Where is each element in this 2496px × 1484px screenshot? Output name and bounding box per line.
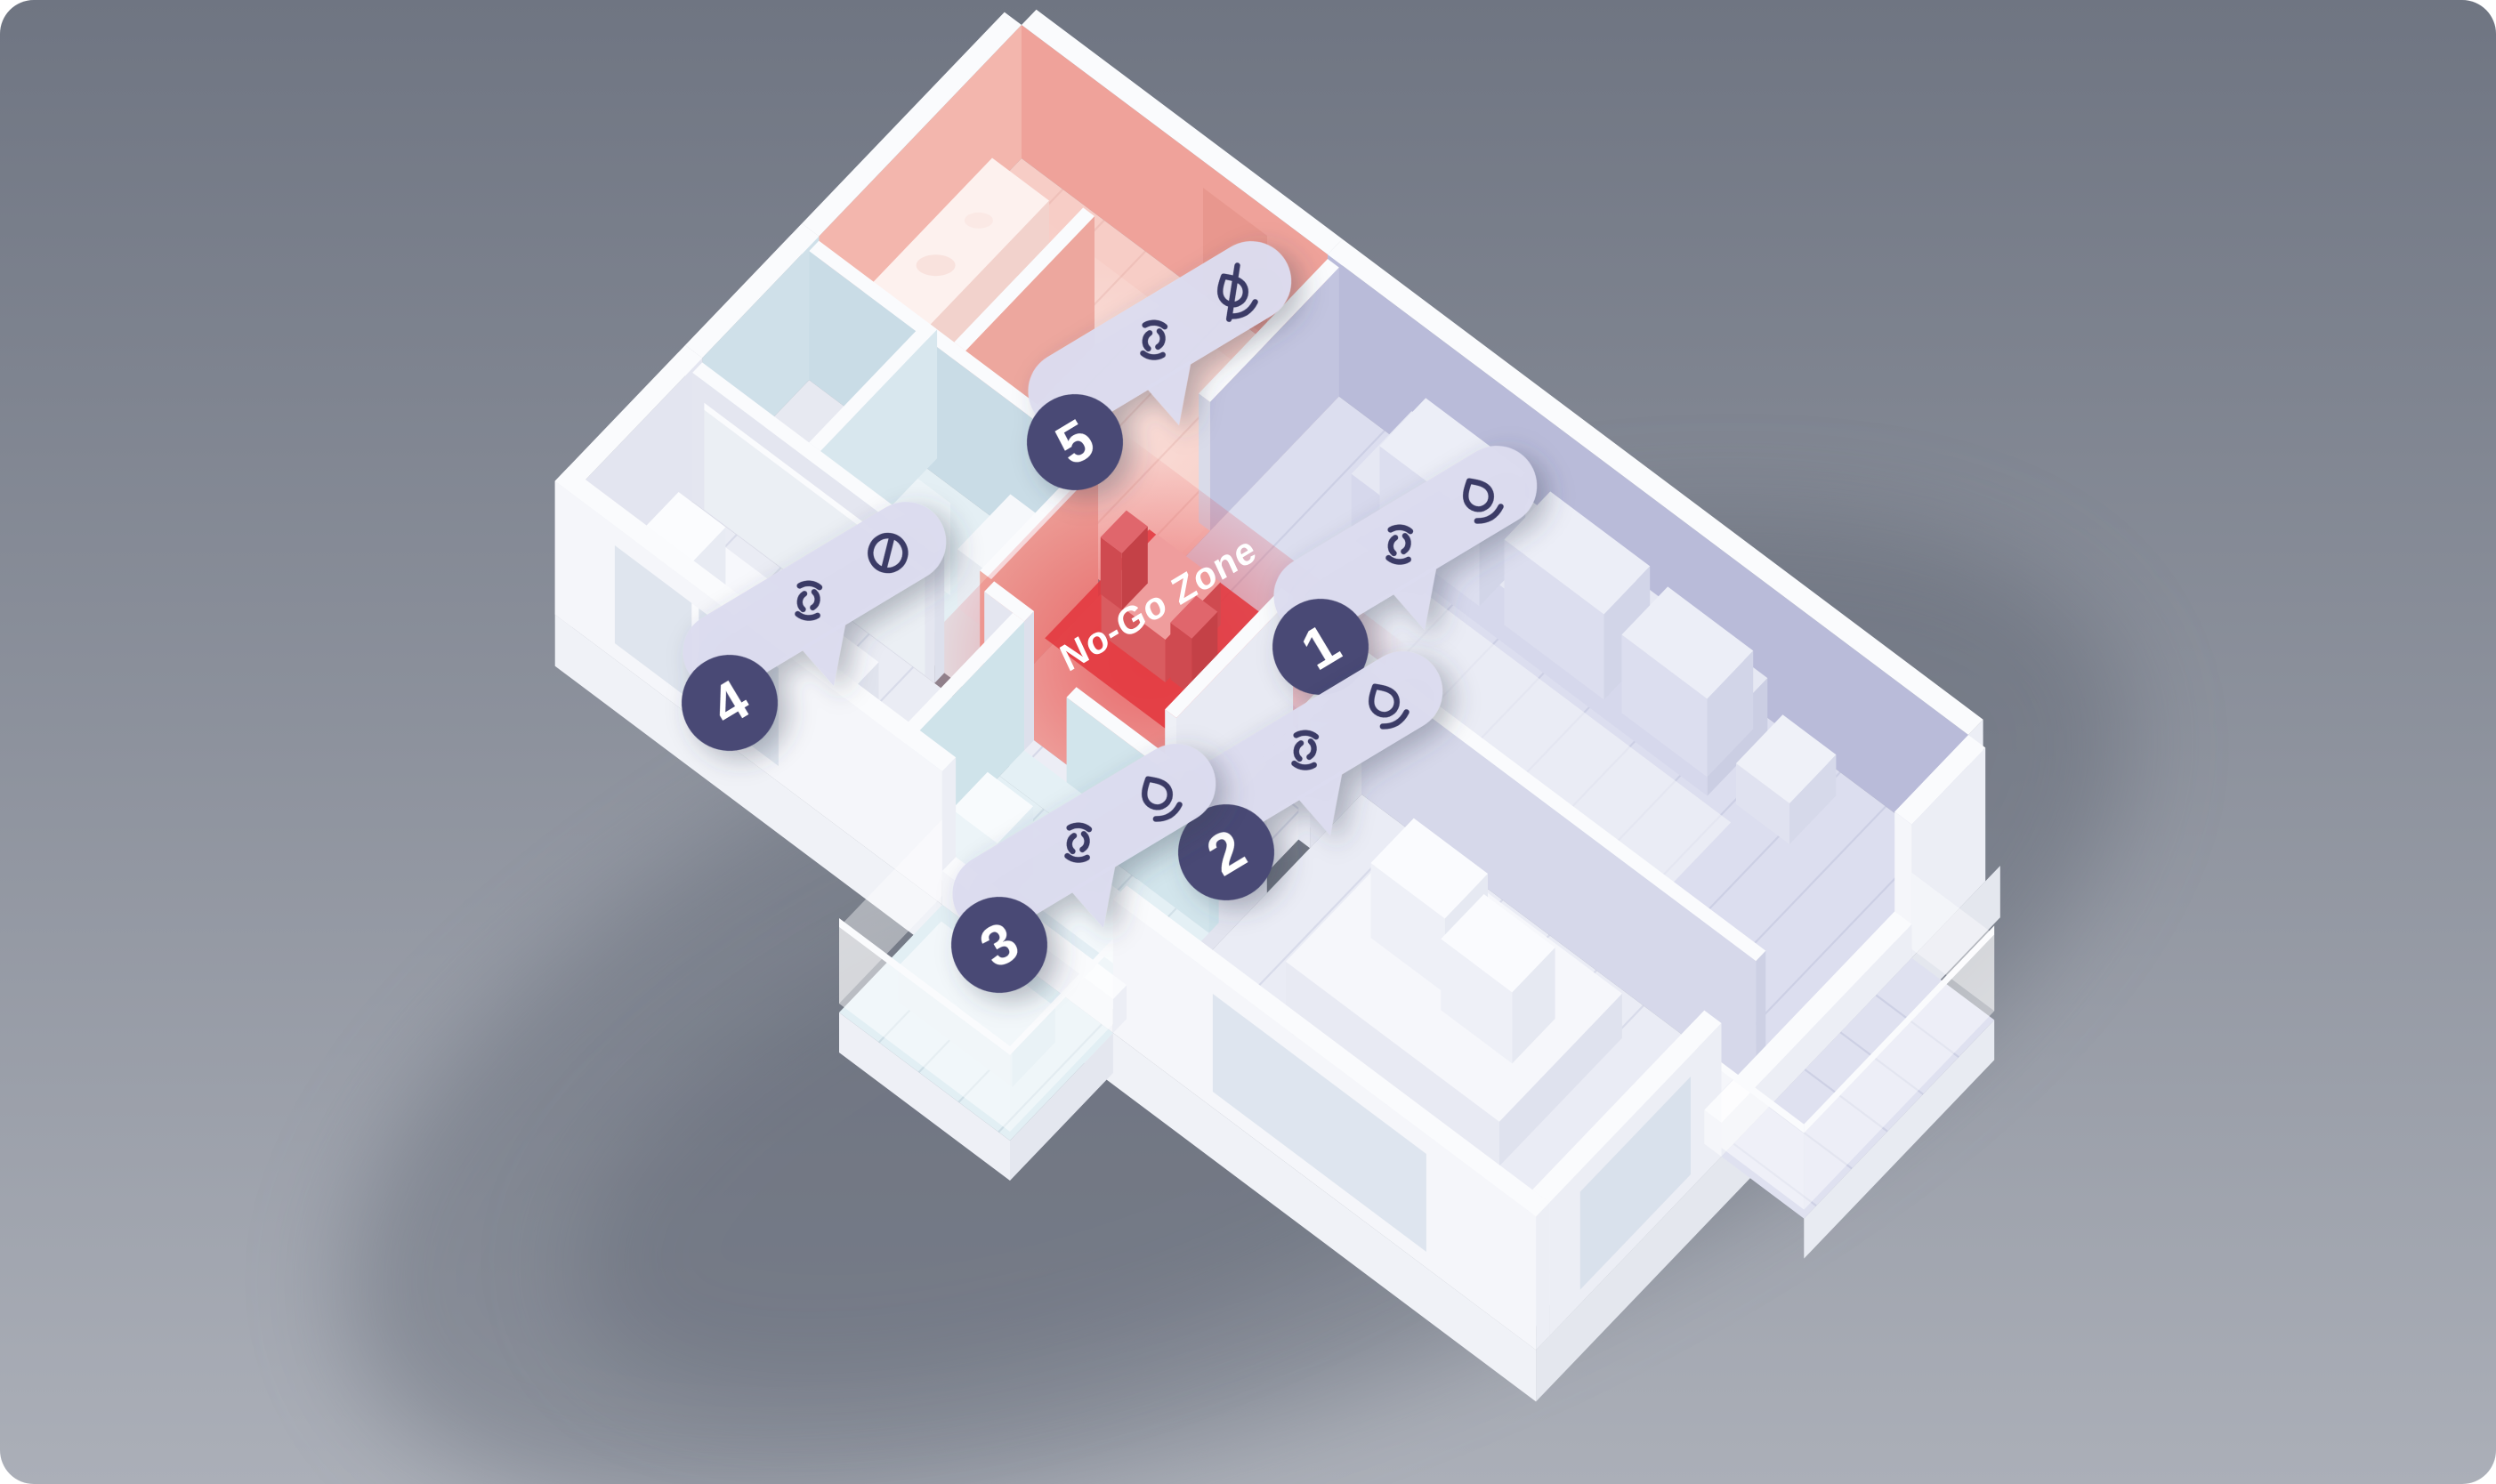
wall-sw-face — [1536, 1203, 1549, 1351]
kitchen-jar — [917, 254, 956, 276]
kitchen-jar — [965, 213, 993, 229]
floorplan-scene: No-Go Zone 12345 — [0, 0, 2496, 1484]
wall-bed4-north-face — [1024, 611, 1034, 751]
